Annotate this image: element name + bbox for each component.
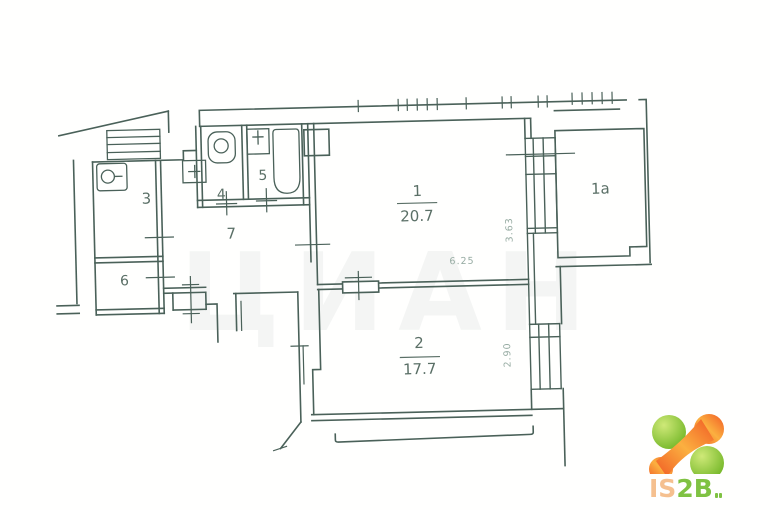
- logo-green-circle-bottom-right: [690, 446, 724, 474]
- door-mark: [343, 281, 379, 293]
- bathtub-icon: [273, 129, 301, 194]
- room-3-number: 3: [141, 190, 151, 208]
- room-1-fraction-line: [398, 203, 437, 204]
- dimension-window1-height: 3.63: [504, 217, 516, 242]
- dimension-window2-height: 2.90: [502, 342, 514, 367]
- room-6-number: 6: [120, 273, 129, 289]
- logo-small-mark: [715, 477, 723, 502]
- floor-plan-page: ЦИАН: [0, 0, 770, 510]
- room-2-number: 2: [414, 334, 424, 352]
- room-7-number: 7: [226, 225, 236, 243]
- is2b-logo-mark: [645, 402, 757, 474]
- vent-shaft-icon: [107, 129, 161, 159]
- room-1a-number: 1a: [591, 179, 610, 197]
- logo-text-is: IS: [649, 474, 676, 503]
- room-1-number: 1: [412, 182, 422, 200]
- room-2-fraction-line: [400, 357, 439, 358]
- room-4-number: 4: [217, 187, 226, 203]
- washbasin-icon: [247, 129, 270, 155]
- is2b-logo: IS2B: [645, 402, 757, 506]
- toilet-icon: [208, 132, 236, 164]
- room-5-number: 5: [258, 168, 267, 184]
- balcony-outline: [335, 426, 533, 442]
- room-2-area: 17.7: [403, 360, 437, 379]
- logo-text-2b: 2B: [676, 474, 712, 503]
- sink-icon: [97, 163, 128, 191]
- dimension-room1-width: 6.25: [449, 256, 474, 268]
- room-1-area: 20.7: [400, 207, 434, 226]
- is2b-logo-text: IS2B: [649, 476, 723, 502]
